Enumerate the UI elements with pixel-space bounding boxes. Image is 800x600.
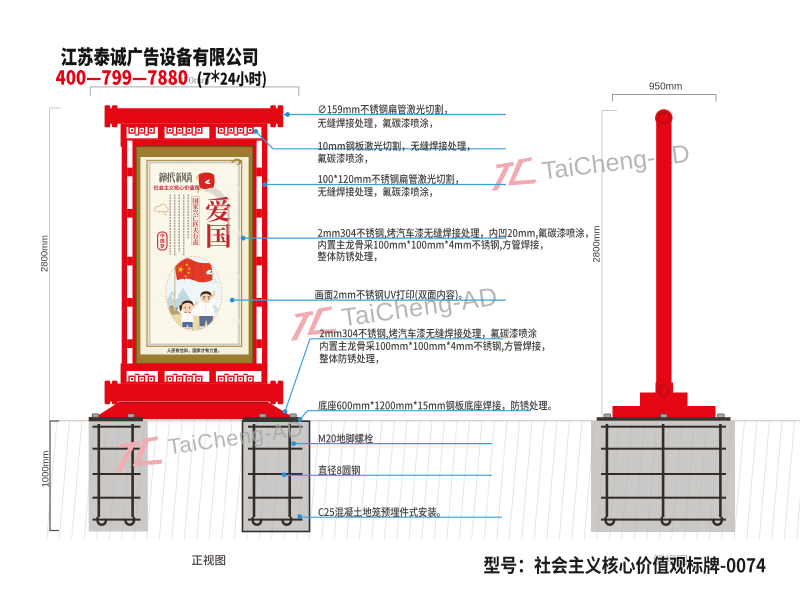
svg-text:950mm: 950mm bbox=[649, 82, 682, 93]
svg-text:2800mm: 2800mm bbox=[592, 225, 603, 262]
svg-text:1000mm: 1000mm bbox=[41, 450, 52, 487]
svg-text:2800mm: 2800mm bbox=[40, 235, 51, 272]
svg-text:TaiCheng-AD: TaiCheng-AD bbox=[340, 283, 500, 333]
